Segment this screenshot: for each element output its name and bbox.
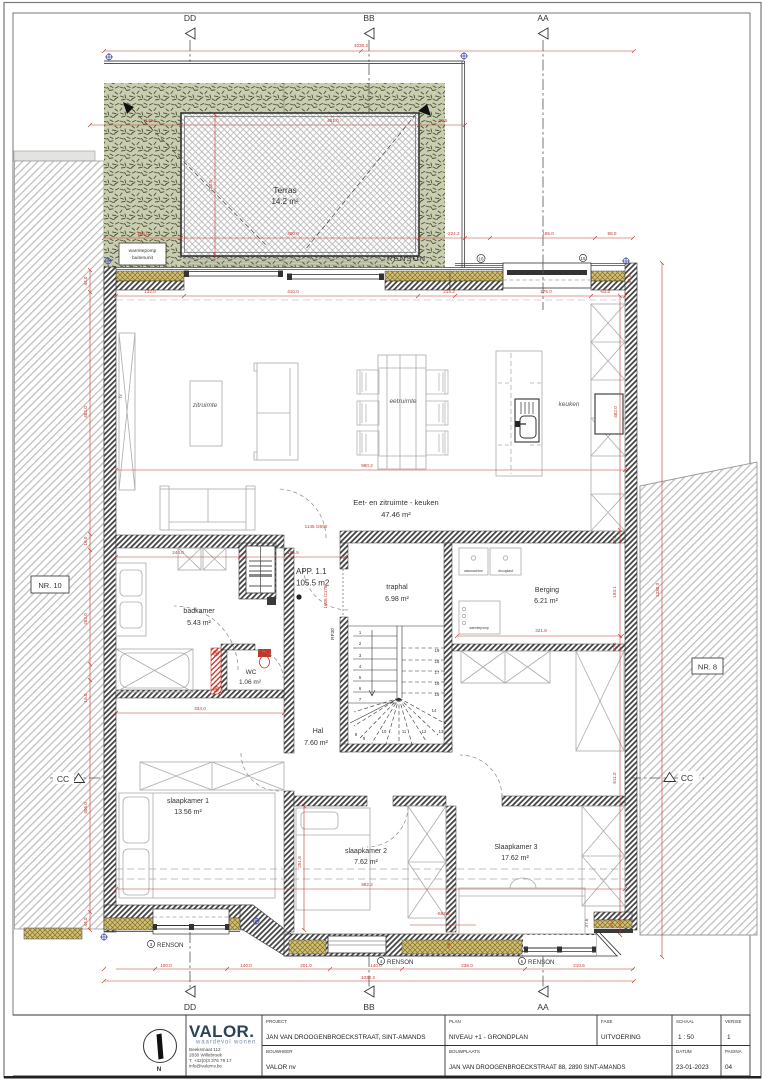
svg-text:47.46 m²: 47.46 m² <box>381 510 411 519</box>
svg-text:44.0: 44.0 <box>83 917 88 926</box>
svg-text:14.2 m²: 14.2 m² <box>271 197 298 206</box>
svg-text:1606 /2176: 1606 /2176 <box>323 585 328 608</box>
svg-text:RENSON: RENSON <box>387 254 426 263</box>
svg-text:90.0: 90.0 <box>612 642 617 651</box>
svg-text:1030.2: 1030.2 <box>354 43 368 48</box>
svg-text:warmtepomp: warmtepomp <box>129 248 157 254</box>
svg-text:04: 04 <box>725 1064 733 1071</box>
svg-text:16.0: 16.0 <box>83 536 88 545</box>
svg-text:5: 5 <box>359 675 362 680</box>
svg-text:88.0: 88.0 <box>608 231 617 236</box>
svg-text:461.0: 461.0 <box>327 118 339 123</box>
svg-text:44.0: 44.0 <box>83 276 88 285</box>
svg-text:37.6: 37.6 <box>584 918 589 927</box>
svg-text:FASE: FASE <box>601 1019 613 1024</box>
svg-text:410.0: 410.0 <box>287 289 299 294</box>
svg-text:8: 8 <box>355 732 358 737</box>
svg-text:droogkast: droogkast <box>498 569 513 573</box>
svg-text:12: 12 <box>422 729 427 734</box>
svg-text:-592.6: -592.6 <box>436 911 449 916</box>
svg-text:175.0: 175.0 <box>540 289 552 294</box>
svg-text:JAN VAN DROOGENBROECKSTRAAT 88: JAN VAN DROOGENBROECKSTRAAT 88, 2890 SIN… <box>449 1064 625 1071</box>
svg-text:214.2: 214.2 <box>443 289 455 294</box>
svg-text:321.8: 321.8 <box>535 628 547 633</box>
svg-text:165.0: 165.0 <box>542 231 554 236</box>
svg-text:-56.0: -56.0 <box>446 938 451 949</box>
svg-text:611.0: 611.0 <box>612 772 617 784</box>
svg-text:17: 17 <box>435 670 440 675</box>
svg-text:23-01-2023: 23-01-2023 <box>676 1064 709 1071</box>
svg-text:AA: AA <box>537 1002 549 1012</box>
svg-text:zitruimte: zitruimte <box>192 402 218 409</box>
svg-text:7: 7 <box>359 697 362 702</box>
svg-text:RF30: RF30 <box>330 628 336 640</box>
svg-text:406.0: 406.0 <box>83 802 88 814</box>
svg-text:CC: CC <box>681 773 693 783</box>
svg-text:-149.5: -149.5 <box>143 118 156 123</box>
svg-text:990.2: 990.2 <box>361 463 373 468</box>
svg-text:140.0: 140.0 <box>240 963 252 968</box>
svg-text:VALOR nv: VALOR nv <box>266 1064 297 1071</box>
svg-text:slaapkamer 2: slaapkamer 2 <box>345 848 387 855</box>
svg-text:251.6: 251.6 <box>297 856 302 868</box>
svg-text:16.0: 16.0 <box>612 535 617 544</box>
svg-text:155.0: 155.0 <box>137 231 149 236</box>
svg-text:7.60 m²: 7.60 m² <box>304 740 328 747</box>
svg-text:warmtepomp: warmtepomp <box>469 626 489 630</box>
svg-text:UITVOERING: UITVOERING <box>601 1034 641 1041</box>
svg-text:badkamer: badkamer <box>183 608 215 615</box>
svg-text:193.1: 193.1 <box>612 586 617 598</box>
svg-text:1145 /2690: 1145 /2690 <box>305 524 328 529</box>
svg-text:AA: AA <box>537 13 549 23</box>
svg-text:1: 1 <box>727 1034 731 1041</box>
svg-text:BOUWPLAATS: BOUWPLAATS <box>449 1049 480 1054</box>
svg-text:44.0: 44.0 <box>609 918 614 927</box>
svg-text:1 : 50: 1 : 50 <box>678 1034 694 1041</box>
svg-text:VERSIE: VERSIE <box>725 1019 742 1024</box>
svg-text:100.0: 100.0 <box>160 963 172 968</box>
svg-text:992.2: 992.2 <box>361 882 373 887</box>
svg-text:17.62 m²: 17.62 m² <box>501 855 529 862</box>
svg-text:WC: WC <box>246 669 257 676</box>
svg-text:9: 9 <box>363 736 366 741</box>
svg-text:slaapkamer 1: slaapkamer 1 <box>167 798 209 805</box>
svg-text:16: 16 <box>435 681 440 686</box>
svg-text:132.0: 132.0 <box>144 289 156 294</box>
svg-text:DATUM: DATUM <box>676 1049 692 1054</box>
svg-text:2: 2 <box>359 641 362 646</box>
svg-text:15: 15 <box>435 692 440 697</box>
svg-text:14: 14 <box>432 708 437 713</box>
svg-text:NR. 10: NR. 10 <box>38 581 61 590</box>
svg-text:NR. 8: NR. 8 <box>698 663 717 672</box>
svg-text:Beeksmaat 112: Beeksmaat 112 <box>189 1047 221 1052</box>
svg-text:DD: DD <box>184 1002 196 1012</box>
svg-text:T. +32(0)3 376 79 17: T. +32(0)3 376 79 17 <box>189 1058 232 1063</box>
svg-text:VALOR.: VALOR. <box>189 1022 254 1041</box>
svg-text:400.0: 400.0 <box>287 231 299 236</box>
svg-text:info@valornv.be: info@valornv.be <box>189 1064 222 1069</box>
svg-text:181.5: 181.5 <box>287 550 299 555</box>
svg-text:1030.2: 1030.2 <box>361 975 375 980</box>
svg-text:eetruimte: eetruimte <box>389 398 416 405</box>
svg-text:BB: BB <box>363 13 375 23</box>
svg-text:RENSON: RENSON <box>157 942 183 949</box>
svg-text:1.06 m²: 1.06 m² <box>239 679 262 686</box>
svg-text:13: 13 <box>439 729 444 734</box>
svg-text:2830 Willebroek: 2830 Willebroek <box>189 1053 223 1058</box>
svg-text:Terras: Terras <box>273 185 297 195</box>
svg-text:16: 16 <box>478 257 484 262</box>
svg-text:CC: CC <box>57 774 69 784</box>
svg-text:Berging: Berging <box>535 587 559 594</box>
svg-text:BB: BB <box>363 1002 375 1012</box>
svg-text:Hal: Hal <box>313 728 324 735</box>
svg-text:PROJECT: PROJECT <box>266 1019 287 1024</box>
svg-text:waardevol wonen: waardevol wonen <box>195 1040 256 1046</box>
svg-text:NIVEAU +1 - GRONDPLAN: NIVEAU +1 - GRONDPLAN <box>449 1034 528 1041</box>
svg-text:5.43 m²: 5.43 m² <box>187 620 211 627</box>
svg-text:13.56 m²: 13.56 m² <box>174 809 202 816</box>
svg-text:482.0: 482.0 <box>613 406 618 418</box>
svg-text:SCHAAL: SCHAAL <box>676 1019 695 1024</box>
svg-text:-63.0: -63.0 <box>600 289 611 294</box>
svg-text:6.21 m²: 6.21 m² <box>534 598 558 605</box>
svg-text:buitenunit: buitenunit <box>132 255 153 261</box>
svg-text:201.0: 201.0 <box>300 963 312 968</box>
svg-text:11: 11 <box>402 729 407 734</box>
svg-text:wasmachine: wasmachine <box>464 569 483 573</box>
svg-text:RENSON: RENSON <box>528 959 554 966</box>
svg-text:16.0: 16.0 <box>83 693 88 702</box>
svg-text:19: 19 <box>435 648 440 653</box>
svg-text:6: 6 <box>359 686 362 691</box>
svg-text:tv: tv <box>118 394 124 398</box>
svg-text:3: 3 <box>359 653 362 658</box>
svg-text:15: 15 <box>581 256 586 261</box>
svg-text:DD: DD <box>184 13 196 23</box>
svg-text:4: 4 <box>359 664 362 669</box>
svg-text:APP. 1.1: APP. 1.1 <box>296 567 327 576</box>
svg-text:RENSON: RENSON <box>387 959 413 966</box>
svg-text:228.0: 228.0 <box>208 180 213 192</box>
svg-text:262.0: 262.0 <box>83 613 88 625</box>
svg-text:N: N <box>157 1066 162 1073</box>
svg-text:1: 1 <box>359 630 362 635</box>
svg-text:334.0: 334.0 <box>194 706 206 711</box>
svg-text:210.5: 210.5 <box>573 963 585 968</box>
svg-text:18: 18 <box>435 659 440 664</box>
svg-text:keuken: keuken <box>559 401 580 408</box>
svg-text:7.62 m²: 7.62 m² <box>354 859 378 866</box>
svg-text:Eet- en zitruimte - keuken: Eet- en zitruimte - keuken <box>353 498 438 507</box>
svg-text:482.0: 482.0 <box>83 406 88 418</box>
svg-text:244.0: 244.0 <box>172 550 184 555</box>
svg-text:PLAN: PLAN <box>449 1019 461 1024</box>
svg-text:44.0: 44.0 <box>627 274 632 283</box>
svg-text:238.0: 238.0 <box>461 963 473 968</box>
svg-text:99.5: 99.5 <box>439 118 448 123</box>
svg-text:10: 10 <box>382 729 387 734</box>
svg-text:JAN VAN DROOGENBROECKSTRAAT, S: JAN VAN DROOGENBROECKSTRAAT, SINT-AMANDS <box>266 1034 426 1041</box>
svg-text:1330.0: 1330.0 <box>655 583 660 597</box>
svg-text:traphal: traphal <box>386 584 408 591</box>
svg-text:6.98 m²: 6.98 m² <box>385 596 409 603</box>
svg-text:BOUWHEER: BOUWHEER <box>266 1049 293 1054</box>
svg-text:Slaapkamer 3: Slaapkamer 3 <box>494 844 537 851</box>
svg-text:PAGINA: PAGINA <box>725 1049 742 1054</box>
svg-text:-224.2: -224.2 <box>446 231 459 236</box>
